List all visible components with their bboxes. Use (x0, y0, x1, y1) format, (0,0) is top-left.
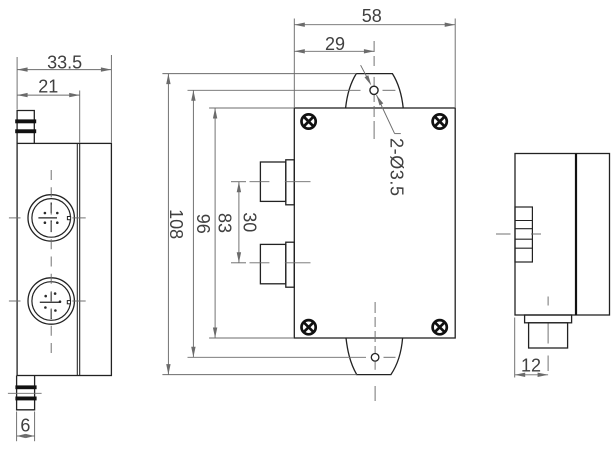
svg-text:29: 29 (325, 34, 345, 54)
svg-text:30: 30 (239, 212, 259, 232)
svg-text:33.5: 33.5 (47, 53, 82, 73)
svg-text:12: 12 (521, 355, 541, 375)
svg-text:83: 83 (215, 213, 235, 233)
svg-text:96: 96 (193, 214, 213, 234)
svg-text:2-Ø3.5: 2-Ø3.5 (386, 138, 406, 197)
svg-text:21: 21 (38, 77, 58, 97)
svg-text:58: 58 (362, 6, 382, 26)
svg-text:6: 6 (20, 416, 30, 436)
svg-text:108: 108 (166, 209, 186, 239)
